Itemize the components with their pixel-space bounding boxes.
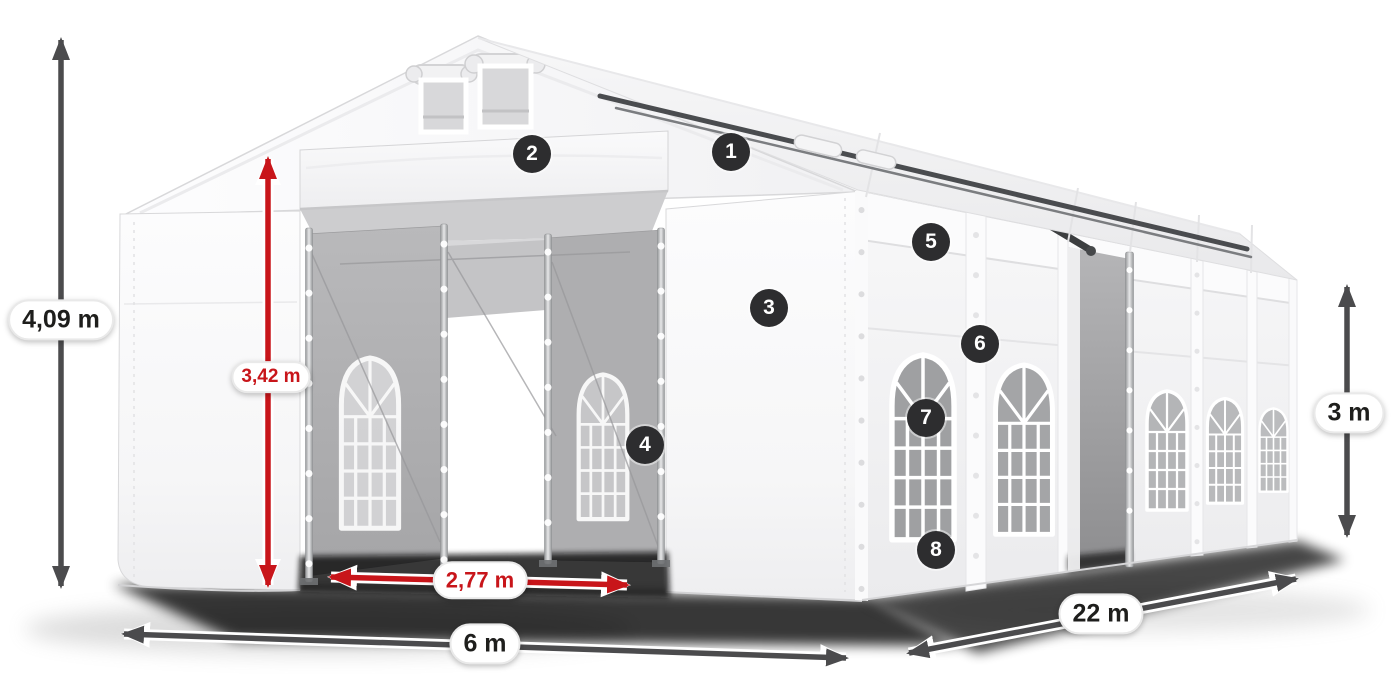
callout-badge-5: 5: [912, 223, 950, 261]
side-post: [1289, 278, 1297, 542]
side-window-2: [996, 365, 1053, 534]
tent-illustration: [0, 0, 1400, 700]
dimension-label-width: 6 m: [449, 623, 520, 664]
side-window-1: [892, 355, 954, 540]
dimension-label-side-wall-height: 3 m: [1313, 392, 1384, 433]
callout-badge-3: 3: [750, 289, 788, 327]
callout-badge-7: 7: [907, 399, 945, 437]
side-window-4: [1207, 398, 1242, 503]
callout-badge-8: 8: [917, 531, 955, 569]
side-post: [1247, 270, 1257, 548]
front-wall-right: [666, 191, 862, 600]
side-post: [1191, 258, 1203, 556]
dimension-label-entrance-width: 2,77 m: [433, 561, 528, 599]
dimension-label-total-height: 4,09 m: [8, 299, 114, 340]
callout-badge-4: 4: [626, 426, 664, 464]
tent-dimension-diagram: 4,09 m 3,42 m 2,77 m 6 m 22 m 3 m 1 2 3 …: [0, 0, 1400, 700]
side-window-5: [1260, 408, 1288, 491]
side-window-3: [1147, 391, 1187, 510]
entrance-interior: [298, 191, 670, 598]
callout-badge-2: 2: [513, 135, 551, 173]
dimension-label-entrance-height: 3,42 m: [231, 361, 310, 393]
side-post: [1058, 231, 1068, 573]
callout-badge-1: 1: [712, 133, 750, 171]
callout-badge-6: 6: [961, 325, 999, 363]
side-post: [966, 212, 986, 591]
dimension-label-length: 22 m: [1059, 593, 1144, 634]
